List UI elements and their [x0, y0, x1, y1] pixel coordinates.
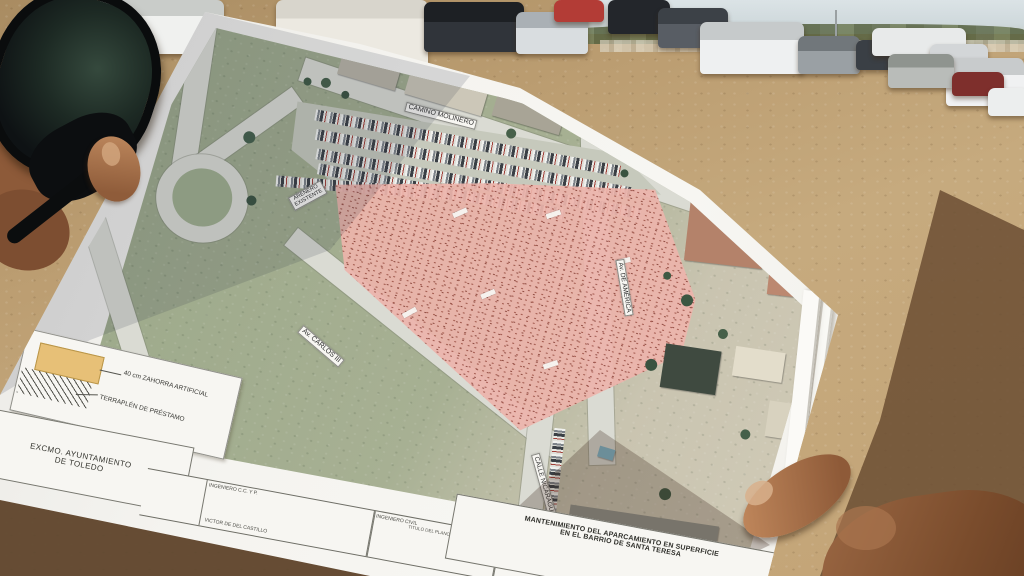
- legend-item-terraplen: TERRAPLÉN DE PRÉSTAMO: [99, 394, 185, 423]
- legend-item-zahorra: 40 cm ZAHORRA ARTIFICIAL: [123, 370, 209, 399]
- photo-scene: CAMINO MOLINERO Av. DE AMÉRICA Av. CARLO…: [0, 0, 1024, 576]
- building-dark-roof: [660, 343, 722, 395]
- car: [888, 54, 954, 88]
- legend-leader: [100, 369, 122, 375]
- car: [798, 36, 860, 74]
- cell-value: VICTOR DE DEL CASTILLO: [204, 517, 268, 534]
- car: [554, 0, 604, 22]
- title-block-cell: INGENIERO C.C. Y P. VICTOR DE DEL CASTIL…: [198, 480, 376, 557]
- car: [988, 88, 1024, 116]
- cell-label: INGENIERO C.C. Y P.: [208, 482, 258, 496]
- knuckle: [836, 506, 896, 550]
- car: [424, 2, 524, 52]
- car: [700, 22, 804, 74]
